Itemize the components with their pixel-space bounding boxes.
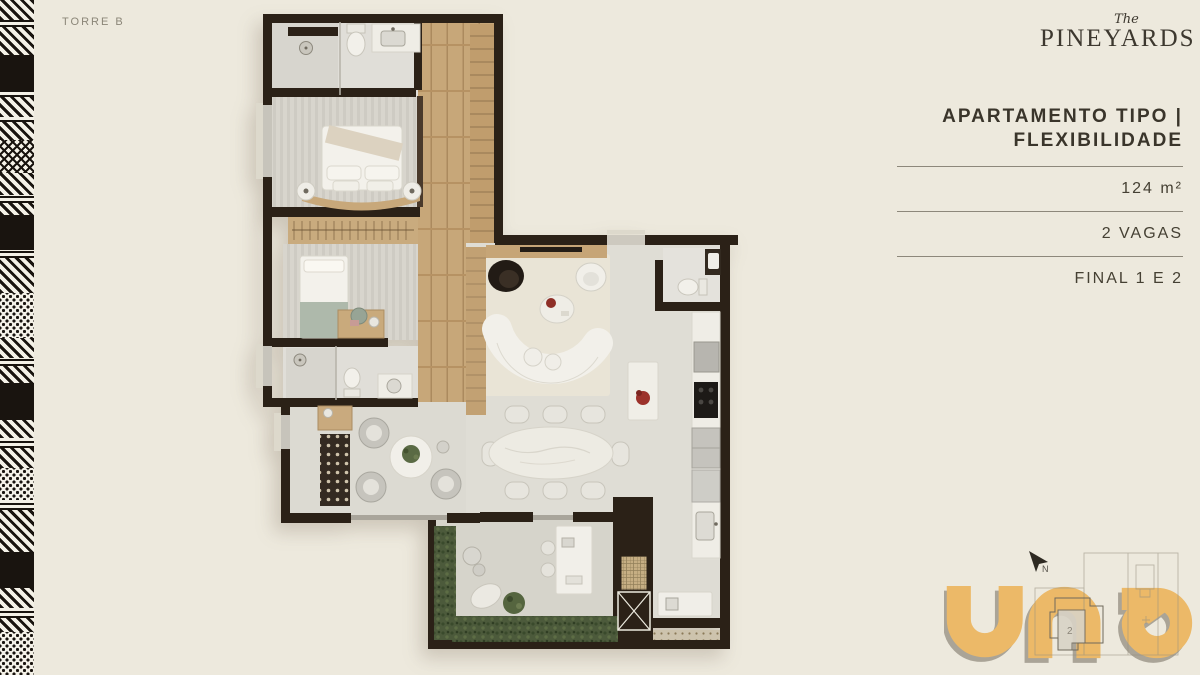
- coffee-table: [540, 295, 574, 323]
- dining-chair: [543, 406, 567, 423]
- hedge: [452, 616, 618, 642]
- wardrobe: [470, 24, 494, 243]
- toilet: [347, 32, 365, 56]
- console: [318, 406, 352, 430]
- pouf: [545, 354, 561, 370]
- plant: [503, 592, 525, 614]
- apartment-plan: [256, 14, 738, 649]
- dining-chair: [612, 442, 629, 466]
- wine-cabinet: [320, 434, 350, 506]
- stool: [541, 541, 555, 555]
- tv: [520, 247, 582, 252]
- floor-plan: N 2: [0, 0, 1200, 675]
- toilet: [678, 279, 698, 295]
- sink: [381, 31, 405, 46]
- oven: [694, 342, 719, 372]
- tile-strip: [653, 630, 720, 640]
- dining-chair: [505, 406, 529, 423]
- pouf: [524, 348, 542, 366]
- dining-table: [489, 427, 613, 479]
- compass: N: [1029, 551, 1049, 574]
- shower-head: [305, 47, 308, 50]
- keyplan: 2: [1035, 553, 1178, 655]
- grill: [621, 556, 647, 590]
- cooktop: [694, 382, 718, 418]
- keyplan-unit-label: 2: [1067, 626, 1073, 637]
- sink: [708, 253, 719, 269]
- slide: TORRE B The PINEYARDS APARTAMENTO TIPO |…: [0, 0, 1200, 675]
- kitchen-sink: [696, 512, 714, 540]
- stool: [541, 563, 555, 577]
- compass-label: N: [1042, 564, 1049, 574]
- dining-chair: [581, 406, 605, 423]
- sink: [387, 379, 401, 393]
- toilet: [344, 368, 360, 388]
- side-table: [463, 547, 481, 565]
- dining-chair: [581, 482, 605, 499]
- dining-chair: [543, 482, 567, 499]
- dining-chair: [505, 482, 529, 499]
